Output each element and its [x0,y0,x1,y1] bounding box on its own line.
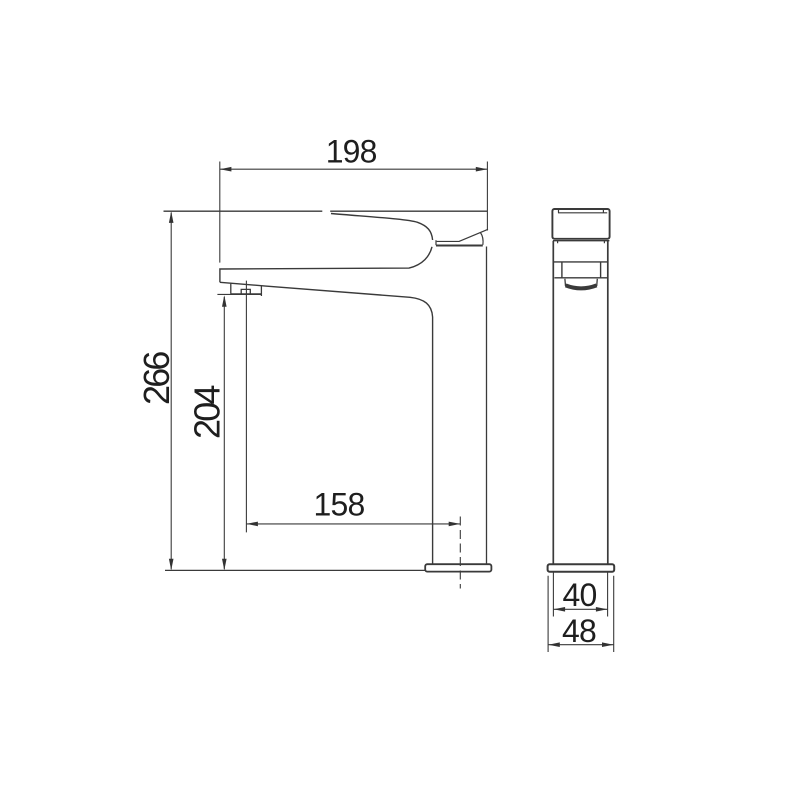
svg-text:40: 40 [563,577,597,613]
svg-text:266: 266 [136,352,177,405]
svg-text:204: 204 [187,386,228,439]
svg-text:198: 198 [326,133,377,169]
svg-text:158: 158 [314,486,365,522]
svg-text:48: 48 [562,613,596,649]
